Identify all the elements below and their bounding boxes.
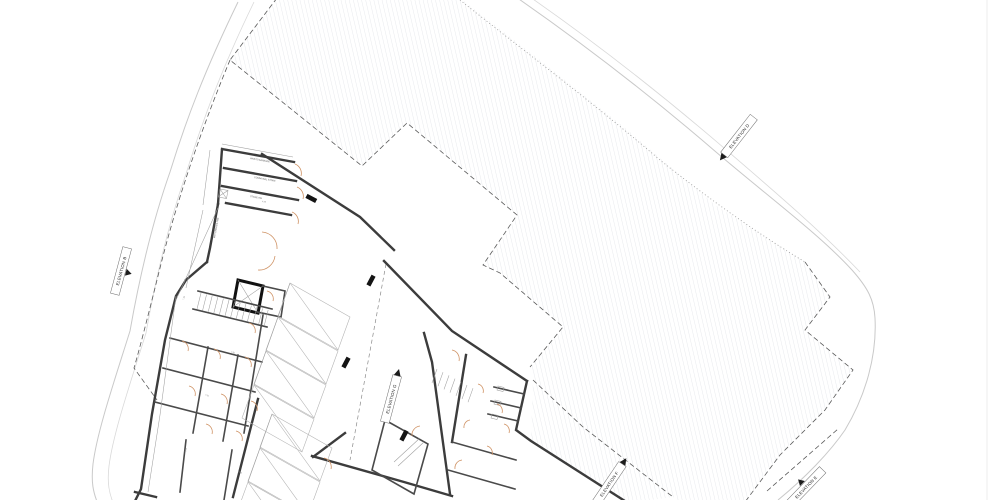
- canopy-edge-dashed: [350, 264, 386, 460]
- dimension-text: 5.95: [185, 447, 188, 452]
- elevation-marker-e: ELEVATION E: [781, 462, 825, 500]
- room-labels: WASTE/GARBAGE COMMUNAL STORE STORE RM MO…: [214, 157, 276, 238]
- dimension-text: 4.85: [262, 201, 267, 204]
- ramp-stripes: [394, 438, 424, 466]
- column: [399, 430, 408, 442]
- elevation-label: ELEVATION D: [728, 123, 750, 150]
- stair-right-treads: [432, 369, 473, 402]
- dimension-text: 2.30: [205, 394, 210, 398]
- floor-plan-drawing: WASTE/GARBAGE COMMUNAL STORE STORE RM MO…: [0, 0, 1000, 500]
- column: [341, 357, 350, 369]
- site-hatch-areas: [230, 0, 853, 500]
- column: [366, 275, 375, 287]
- kerb-left-outer: [92, 2, 238, 500]
- left-wing-walls: [155, 315, 263, 500]
- dimension-text: 7.35: [183, 295, 186, 300]
- floor-plan-canvas: WASTE/GARBAGE COMMUNAL STORE STORE RM MO…: [0, 0, 1000, 500]
- elevation-label: ELEVATION E: [794, 475, 818, 500]
- west-wall: [134, 204, 218, 500]
- ramp-room-walls: [372, 420, 428, 494]
- room-label: STORE RM: [250, 196, 262, 200]
- elevation-marker-b: ELEVATION B: [110, 247, 137, 297]
- elevation-marker-g: ELEVATION G: [380, 368, 403, 423]
- bottom-walls: [135, 399, 452, 497]
- column: [305, 194, 317, 203]
- elevation-marker-d: ELEVATION D: [716, 114, 757, 163]
